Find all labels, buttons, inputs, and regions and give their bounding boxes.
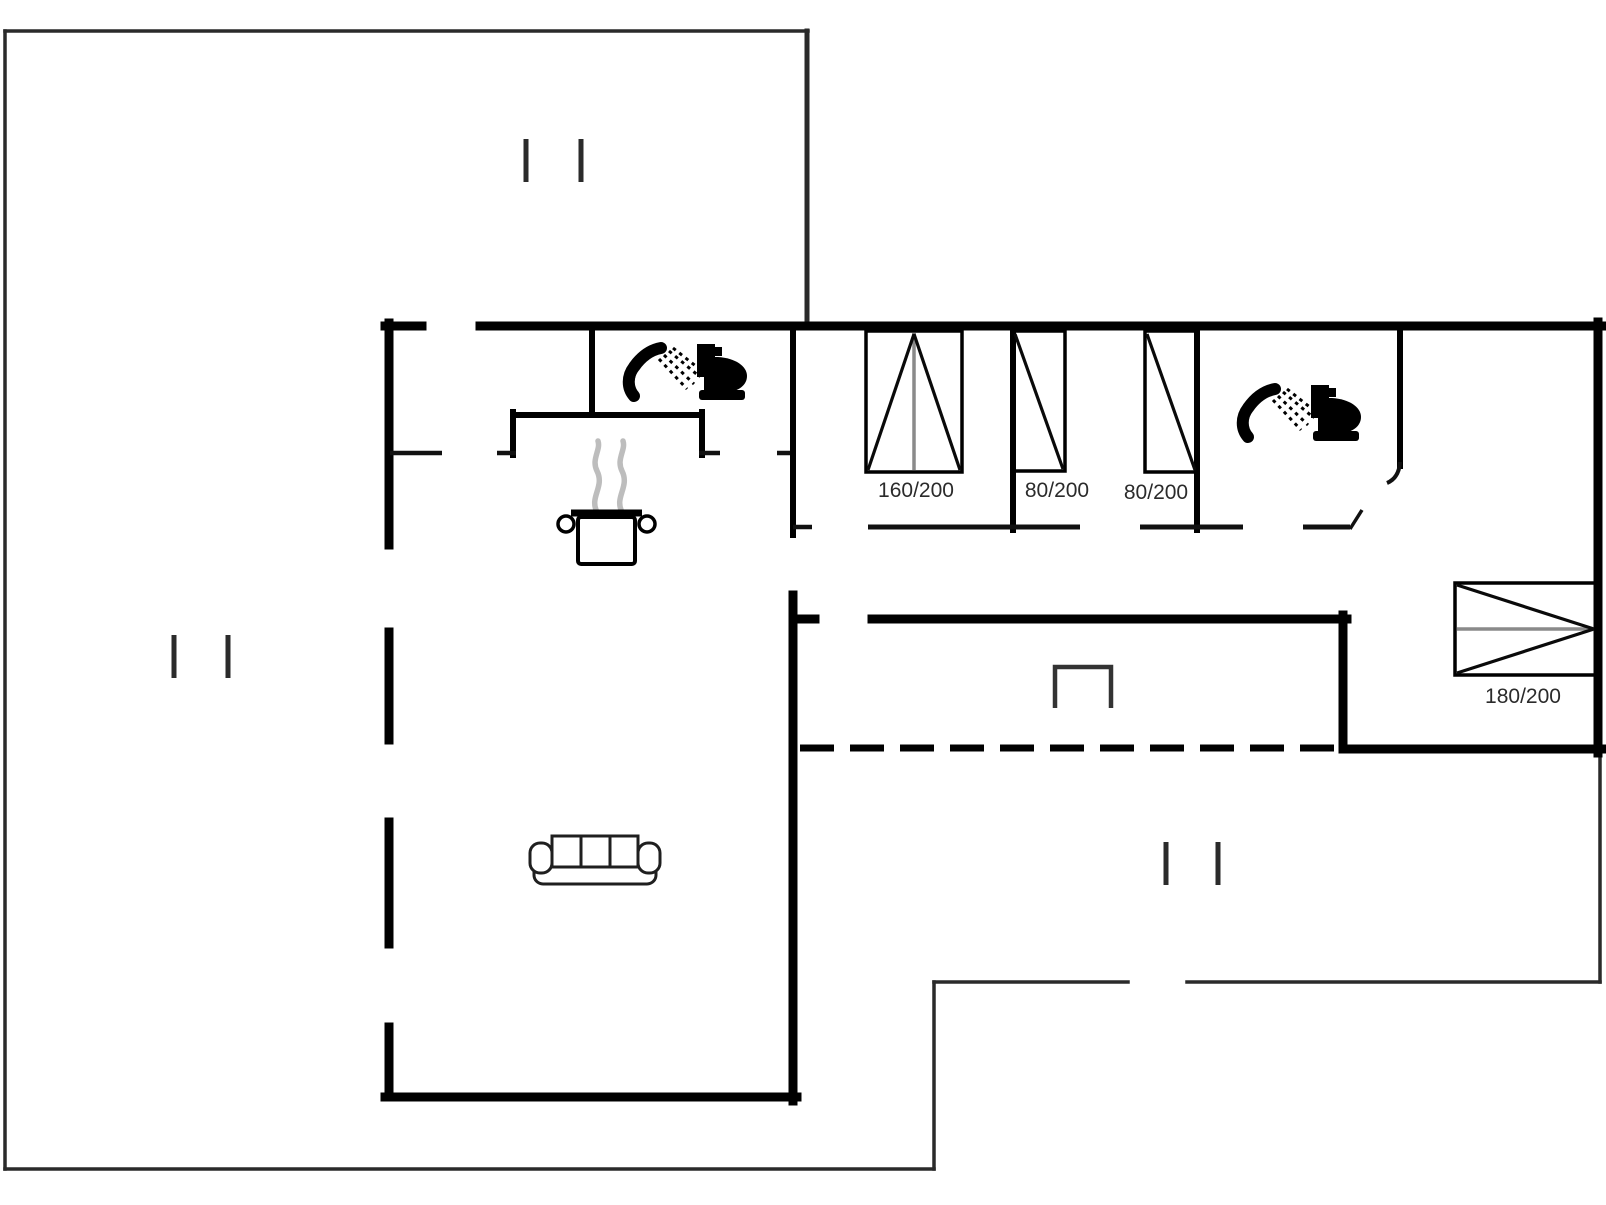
bathroom2-fixtures	[1243, 385, 1361, 441]
bed-label-master: 180/200	[1485, 685, 1561, 708]
bed-diagonal	[1457, 629, 1594, 673]
window-ticks	[174, 139, 1218, 885]
steam-icon	[595, 441, 600, 512]
bed-80-200-b	[1145, 331, 1197, 472]
pot-handle-left	[558, 516, 574, 532]
bed-diagonal	[1015, 334, 1063, 469]
floor-plan-page: 160/200 80/200 80/200 180/200	[0, 0, 1606, 1205]
cooking-pot-icon	[558, 441, 655, 564]
shower-icon	[629, 348, 702, 396]
steam-icon	[620, 441, 625, 512]
sofa-cushions	[552, 836, 638, 867]
toilet-icon	[1311, 385, 1361, 441]
bed-80-200-a	[1013, 331, 1065, 471]
floor-plan-drawing: 160/200 80/200 80/200 180/200	[0, 0, 1606, 1205]
bed-diagonal	[1457, 585, 1594, 629]
shower-spray	[1278, 396, 1308, 425]
door-swing-icon	[1387, 462, 1400, 483]
sofa-icon	[530, 836, 660, 884]
bed-diagonal	[868, 334, 914, 470]
bed-180-200	[1455, 583, 1596, 675]
pot-body	[578, 517, 635, 564]
bed-label-single-b: 80/200	[1124, 481, 1188, 504]
bed-160-200	[866, 331, 962, 472]
exterior-walls	[385, 322, 1606, 1101]
shower-icon	[1243, 389, 1316, 437]
grill-symbol	[1055, 667, 1111, 708]
bathroom1-fixtures	[629, 344, 747, 400]
bed-diagonal	[914, 334, 960, 470]
shower-spray	[664, 355, 694, 384]
pot-handle-right	[639, 516, 655, 532]
bed-diagonal	[1147, 334, 1195, 470]
sofa-arm-left	[530, 843, 552, 873]
sofa-arm-right	[638, 843, 660, 873]
bed-label-double: 160/200	[878, 479, 954, 502]
terrace-outline	[5, 31, 1600, 1169]
bed-label-single-a: 80/200	[1025, 479, 1089, 502]
toilet-icon	[697, 344, 747, 400]
door-leaf-tick-icon	[1350, 510, 1362, 529]
